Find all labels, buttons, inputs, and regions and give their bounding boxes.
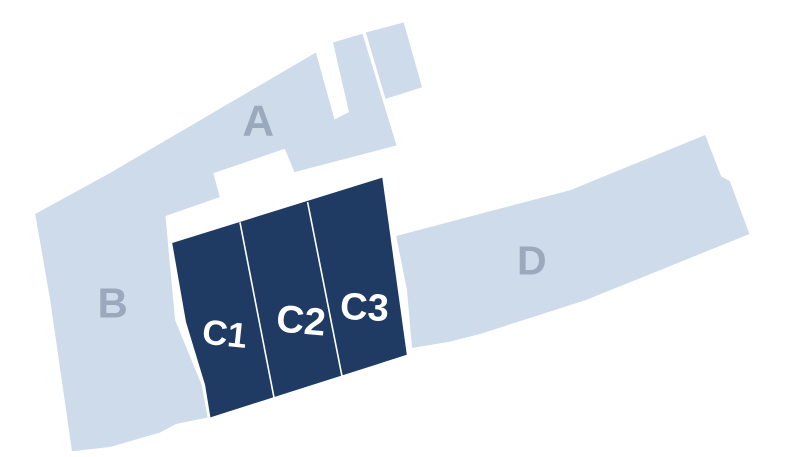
svg-text:A: A [242,96,274,145]
svg-text:B: B [98,279,128,326]
svg-text:C2: C2 [275,297,328,344]
svg-text:C3: C3 [339,286,389,330]
svg-text:D: D [517,237,547,283]
svg-text:C1: C1 [200,313,249,356]
